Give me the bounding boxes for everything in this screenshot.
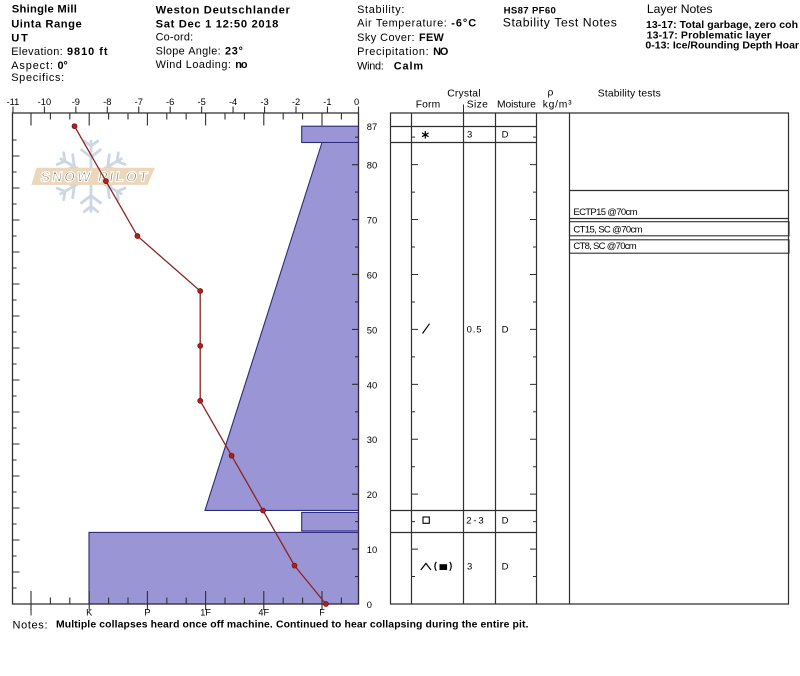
svg-text:Sky Cover:: Sky Cover:	[357, 32, 414, 44]
svg-text:Wind Loading:: Wind Loading:	[156, 59, 231, 71]
svg-text:-8: -8	[103, 97, 111, 107]
svg-text:Layer Notes: Layer Notes	[647, 2, 713, 16]
svg-text:Shingle Mill: Shingle Mill	[12, 3, 77, 15]
svg-text:-9: -9	[72, 97, 80, 107]
svg-text:2-3: 2-3	[466, 516, 484, 527]
svg-text:ECTP15 @70cm: ECTP15 @70cm	[573, 207, 637, 218]
svg-text:0: 0	[354, 97, 359, 107]
svg-text:Stability Test Notes: Stability Test Notes	[503, 16, 617, 30]
svg-text:Air Temperature:: Air Temperature:	[357, 17, 447, 29]
svg-text:no: no	[235, 59, 248, 71]
svg-text:Form: Form	[416, 100, 441, 111]
svg-text:9810 ft: 9810 ft	[67, 46, 108, 58]
svg-text:-2: -2	[292, 97, 300, 107]
svg-text:Wind:: Wind:	[357, 60, 384, 72]
svg-text:50: 50	[367, 324, 377, 335]
svg-text:Size: Size	[467, 100, 488, 111]
svg-text:I: I	[30, 607, 33, 617]
svg-text:CT8, SC @70cm: CT8, SC @70cm	[573, 241, 636, 252]
svg-text:K: K	[86, 607, 93, 617]
svg-text:Specifics:: Specifics:	[11, 72, 64, 84]
svg-text:SNOW PILOT: SNOW PILOT	[40, 168, 151, 184]
svg-text:Sat Dec 1 12:50 2018: Sat Dec 1 12:50 2018	[156, 18, 279, 30]
svg-text:80: 80	[367, 160, 377, 171]
svg-text:Precipitation:: Precipitation:	[357, 46, 429, 58]
svg-text:0°: 0°	[58, 60, 68, 72]
svg-text:D: D	[502, 516, 509, 527]
svg-text:ρ: ρ	[548, 88, 554, 99]
svg-text:P: P	[144, 607, 150, 617]
svg-text:-3: -3	[260, 97, 268, 107]
svg-text:10: 10	[367, 544, 377, 555]
svg-text:30: 30	[367, 434, 377, 445]
svg-text:Stability:: Stability:	[357, 4, 404, 16]
svg-text:F: F	[319, 607, 325, 617]
svg-text:Uinta Range: Uinta Range	[11, 19, 82, 31]
svg-text:70: 70	[367, 215, 377, 226]
svg-text:Moisture: Moisture	[497, 100, 536, 111]
svg-text:HS87 PF60: HS87 PF60	[504, 5, 556, 16]
svg-text:-6°C: -6°C	[451, 17, 476, 29]
svg-text:0: 0	[367, 599, 372, 610]
svg-text:Slope Angle:: Slope Angle:	[156, 46, 221, 58]
svg-text:1F: 1F	[200, 607, 211, 617]
svg-text:3: 3	[467, 561, 472, 572]
svg-text:-11: -11	[7, 97, 20, 107]
svg-text:87: 87	[367, 121, 377, 132]
svg-text:-4: -4	[229, 97, 237, 107]
svg-text:D: D	[502, 130, 509, 141]
svg-text:-1: -1	[323, 97, 331, 107]
svg-text:Notes:: Notes:	[13, 619, 48, 631]
svg-text:-6: -6	[166, 97, 174, 107]
svg-text:Aspect:: Aspect:	[11, 60, 53, 72]
svg-text:-10: -10	[38, 97, 51, 107]
svg-text:23°: 23°	[225, 46, 243, 58]
svg-text:Weston Deutschlander: Weston Deutschlander	[156, 4, 291, 16]
svg-text:NO: NO	[433, 46, 449, 58]
svg-text:Co-ord:: Co-ord:	[156, 32, 194, 44]
svg-text:Elevation:: Elevation:	[11, 46, 63, 58]
svg-text:0-13: Ice/Rounding Depth Hoar: 0-13: Ice/Rounding Depth Hoar	[645, 39, 799, 51]
svg-text:20: 20	[367, 489, 377, 500]
svg-text:40: 40	[367, 379, 377, 390]
svg-text:kg/m³: kg/m³	[543, 100, 572, 111]
svg-text:D: D	[502, 561, 509, 572]
svg-text:60: 60	[367, 269, 377, 280]
svg-text:Stability tests: Stability tests	[598, 89, 661, 100]
svg-text:CT15, SC @70cm: CT15, SC @70cm	[573, 225, 642, 236]
svg-text:Crystal: Crystal	[447, 89, 480, 100]
svg-text:3: 3	[467, 130, 472, 141]
svg-text:-5: -5	[198, 97, 206, 107]
svg-text:Multiple collapses heard once: Multiple collapses heard once off machin…	[56, 620, 529, 631]
svg-text:0.5: 0.5	[467, 325, 482, 336]
svg-text:-7: -7	[135, 97, 143, 107]
svg-text:Calm: Calm	[394, 60, 424, 72]
svg-text:D: D	[502, 325, 509, 336]
svg-text:4F: 4F	[258, 607, 269, 617]
svg-text:FEW: FEW	[419, 32, 445, 44]
